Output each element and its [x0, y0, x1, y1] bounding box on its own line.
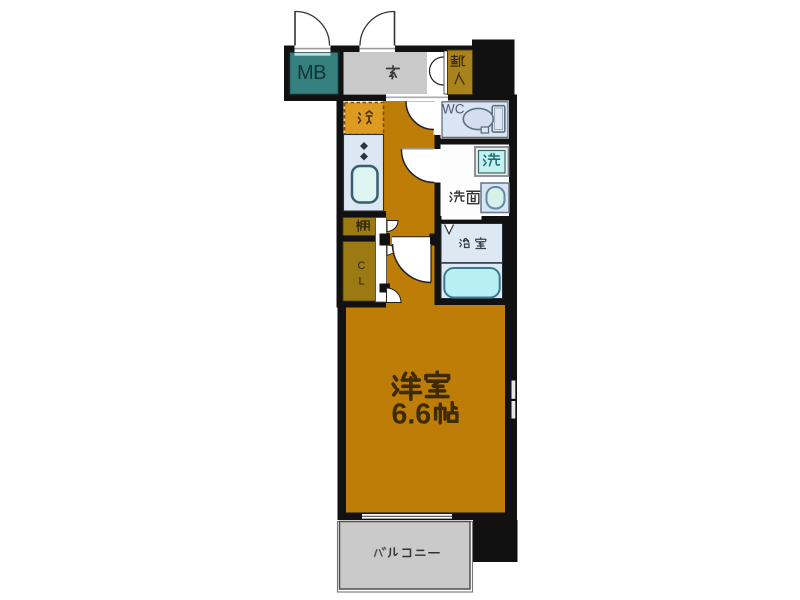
svg-text:C: C: [358, 260, 366, 272]
svg-text:6.6: 6.6: [392, 399, 432, 431]
svg-text:MB: MB: [297, 62, 326, 84]
svg-text:WC: WC: [442, 102, 465, 117]
svg-text:L: L: [358, 276, 364, 288]
